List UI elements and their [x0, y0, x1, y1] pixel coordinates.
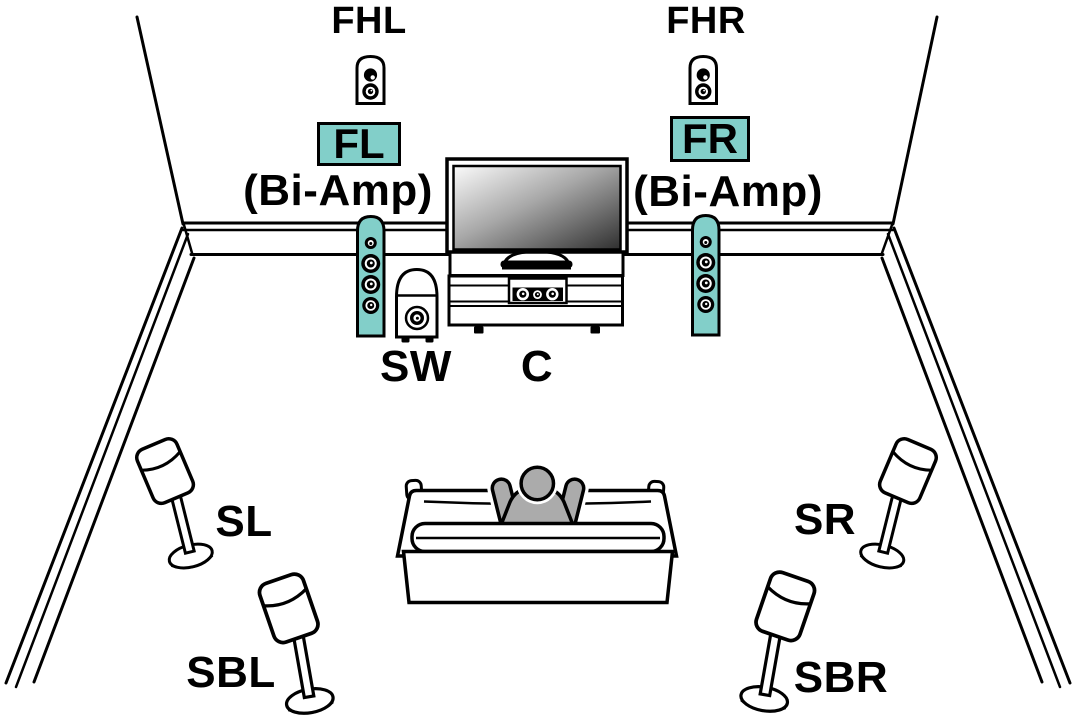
sr-speaker-icon — [858, 434, 940, 574]
sr-label: SR — [794, 498, 856, 542]
bi-amp-left-label: (Bi-Amp) — [243, 169, 433, 213]
subwoofer-icon — [397, 270, 438, 343]
listener-icon — [490, 467, 585, 530]
sw-label: SW — [380, 345, 452, 389]
sbr-label: SBR — [794, 656, 888, 700]
fhr-speaker-icon — [690, 57, 717, 104]
left-ceiling-corner-line — [137, 17, 183, 224]
fr-label-box: FR — [670, 116, 750, 162]
sbl-label: SBL — [186, 651, 276, 695]
fr-tower-speaker-icon — [693, 216, 720, 336]
tv-icon — [447, 159, 627, 252]
tv-stand-icon — [449, 252, 623, 334]
bi-amp-right-label: (Bi-Amp) — [633, 170, 823, 214]
fhl-label: FHL — [331, 2, 406, 40]
sl-speaker-icon — [132, 434, 214, 574]
c-label: C — [521, 345, 553, 389]
fhl-speaker-icon — [357, 57, 384, 104]
fl-label-box: FL — [317, 122, 401, 166]
right-ceiling-corner-line — [893, 17, 937, 224]
sofa-icon — [398, 467, 677, 602]
sofa-base — [404, 552, 673, 603]
fl-tower-speaker-icon — [358, 217, 385, 337]
tv-screen — [454, 166, 621, 250]
fhr-label: FHR — [666, 2, 746, 40]
sl-label: SL — [215, 500, 272, 544]
center-speaker-icon — [509, 279, 567, 304]
speaker-layout-diagram: FHL FHR FL FR (Bi-Amp) (Bi-Amp) SW C SL … — [0, 0, 1082, 724]
